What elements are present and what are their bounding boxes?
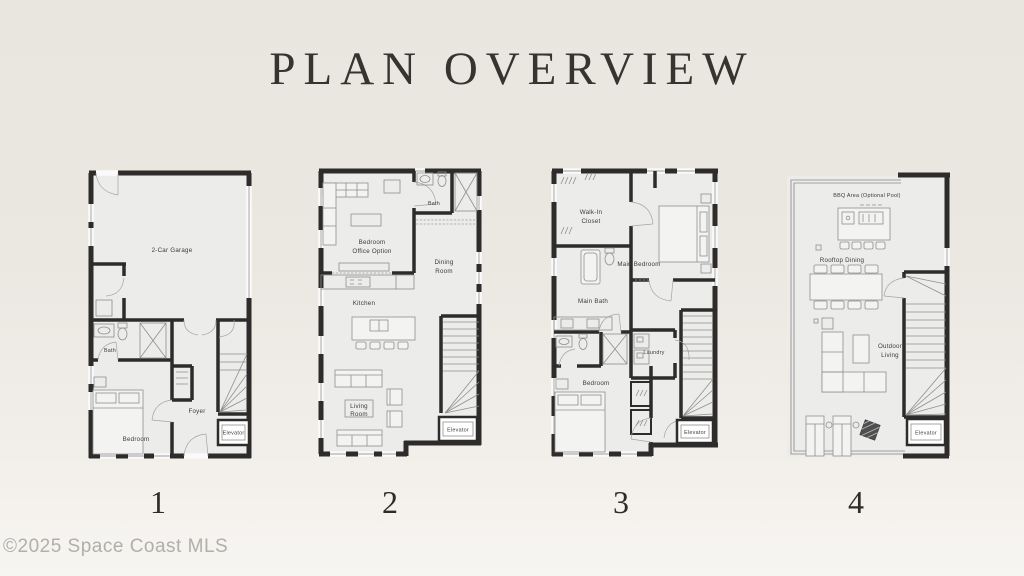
watermark: ©2025 Space Coast MLS xyxy=(3,536,228,558)
area-label-outdoor-living: Outdoor xyxy=(878,343,902,350)
room-label-bedroom: Bedroom xyxy=(123,436,150,443)
area-label-rooftop-dining: Rooftop Dining xyxy=(820,257,865,264)
svg-text:Room: Room xyxy=(350,411,368,418)
room-label-living: Living xyxy=(350,403,368,410)
elevator-box: Elevator xyxy=(677,420,713,443)
room-label-elevator: Elevator xyxy=(915,431,937,437)
room-label-elevator: Elevator xyxy=(684,430,706,436)
floor-plan-4: Elevator BBQ Area (Optional Pool) Roofto… xyxy=(783,172,953,462)
page-title: PLAN OVERVIEW xyxy=(0,42,1024,96)
room-label-walkin: Walk-In xyxy=(580,209,603,216)
room-label-bath: Bath xyxy=(104,348,116,354)
room-label-kitchen: Kitchen xyxy=(353,300,376,307)
room-label-elevator: Elevator xyxy=(223,431,245,437)
room-label-elevator: Elevator xyxy=(447,428,469,434)
room-label-main-bath: Main Bath xyxy=(578,298,608,305)
floor-plan-1: Elevator 2-Car Garage Bath Bedroom Foyer xyxy=(88,170,252,465)
room-label-laundry: Laundry xyxy=(643,350,664,356)
room-label-bedroom: Bedroom xyxy=(583,380,610,387)
plan-overview-page: PLAN OVERVIEW xyxy=(0,0,1024,576)
svg-text:Room: Room xyxy=(435,268,453,275)
floor-plan-3: Elevator Walk-In Closet Main Bedroom Mai… xyxy=(551,168,719,465)
elevator-box: Elevator xyxy=(218,420,249,445)
coffee-table-icon xyxy=(853,335,869,363)
plan-number-3: 3 xyxy=(591,484,651,521)
svg-text:Closet: Closet xyxy=(581,218,600,225)
area-label-bbq: BBQ Area (Optional Pool) xyxy=(833,193,900,199)
floor-plan-4-drawing: Elevator BBQ Area (Optional Pool) Roofto… xyxy=(783,172,953,462)
room-label-main-bedroom: Main Bedroom xyxy=(617,261,660,268)
bed-icon xyxy=(659,194,711,273)
svg-text:Office Option: Office Option xyxy=(352,248,392,255)
elevator-box: Elevator xyxy=(907,419,945,445)
svg-text:Living: Living xyxy=(881,352,899,359)
plan-number-2: 2 xyxy=(360,484,420,521)
room-label-bath: Bath xyxy=(428,201,440,207)
plan-number-4: 4 xyxy=(826,484,886,521)
elevator-box: Elevator xyxy=(439,417,477,441)
room-label-bedroom-office: Bedroom xyxy=(359,239,386,246)
room-label-garage: 2-Car Garage xyxy=(152,247,193,254)
room-label-foyer: Foyer xyxy=(188,408,205,415)
floor-plan-1-drawing: Elevator 2-Car Garage Bath Bedroom Foyer xyxy=(88,170,252,465)
floor-plan-2: Elevator Bedroom Office Option Bath Dini… xyxy=(318,168,482,465)
plan-number-1: 1 xyxy=(128,484,188,521)
floor-plan-2-drawing: Elevator Bedroom Office Option Bath Dini… xyxy=(318,168,482,465)
floor-plan-3-drawing: Elevator Walk-In Closet Main Bedroom Mai… xyxy=(551,168,719,465)
room-label-dining: Dining xyxy=(434,259,453,266)
bbq-island-icon xyxy=(838,205,890,249)
